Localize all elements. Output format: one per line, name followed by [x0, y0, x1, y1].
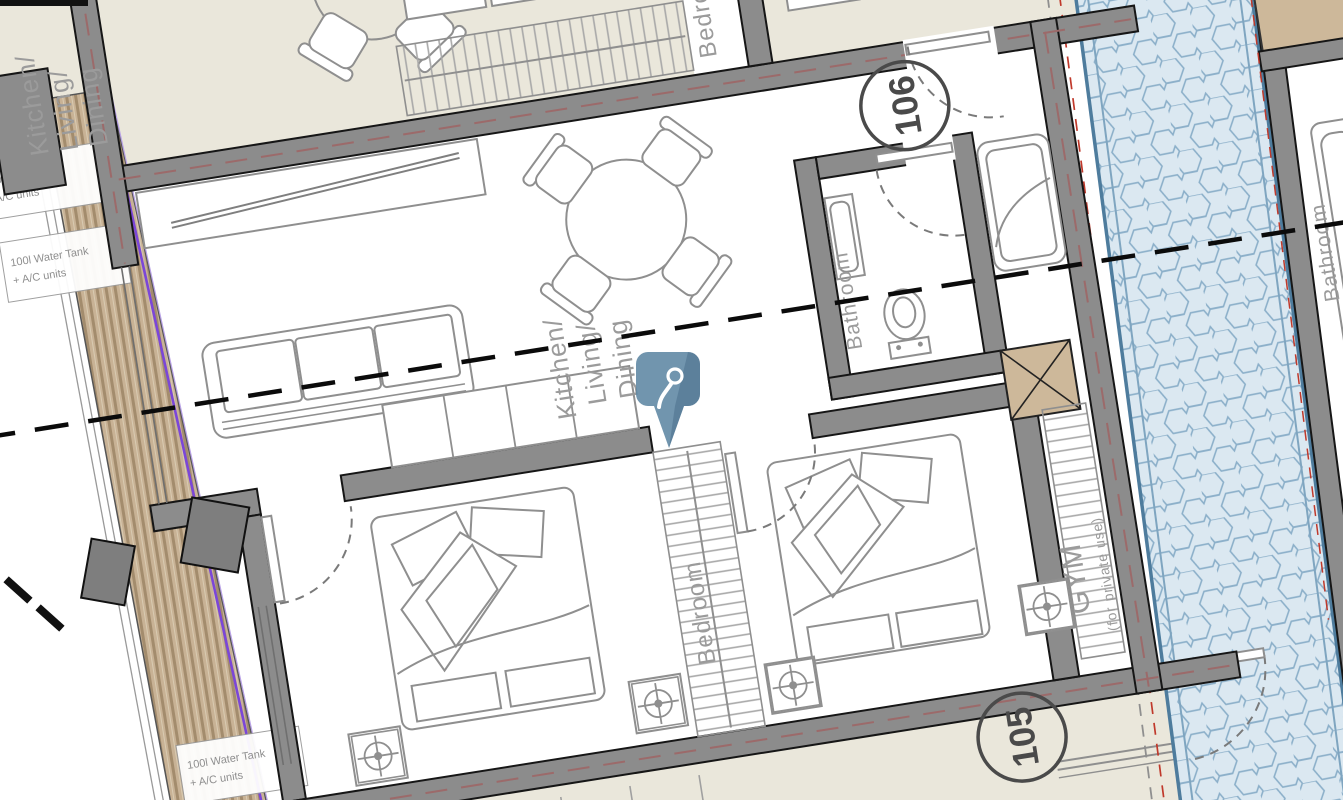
bed-2 [766, 433, 991, 666]
edge-wall-fragment [0, 0, 88, 6]
bed-1 [370, 486, 606, 730]
floor-plan-canvas: 100l Water Tank + A/C units 100l Water T… [0, 0, 1343, 800]
section-dashes-bottom-left [3, 576, 64, 631]
